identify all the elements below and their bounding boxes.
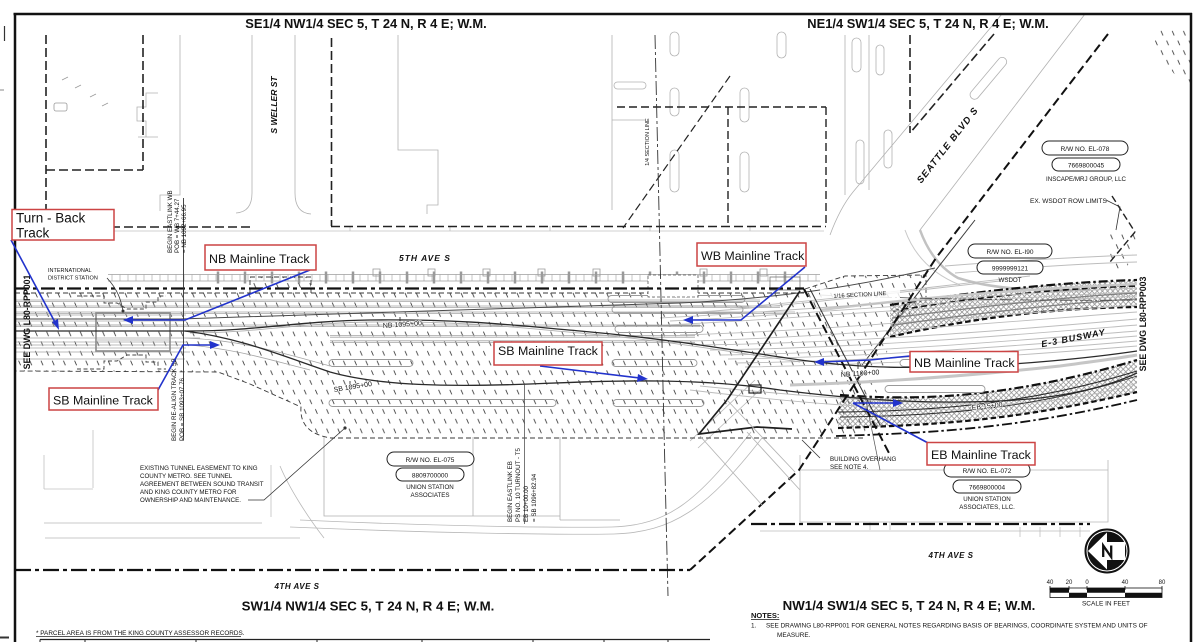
svg-text:4TH AVE S: 4TH AVE S <box>274 582 320 591</box>
svg-text:EX. WSDOT ROW LIMITS: EX. WSDOT ROW LIMITS <box>1030 198 1107 205</box>
svg-text:WB Mainline Track: WB Mainline Track <box>701 249 805 263</box>
svg-text:BEGIN EASTLINK EB: BEGIN EASTLINK EB <box>507 461 514 522</box>
svg-text:SEE DWG L80-RPP003: SEE DWG L80-RPP003 <box>1138 276 1148 371</box>
svg-text:NB Mainline Track: NB Mainline Track <box>209 252 310 266</box>
svg-text:POB = WB 7+44.27: POB = WB 7+44.27 <box>174 198 181 253</box>
svg-text:COUNTY METRO. SEE TUNNEL: COUNTY METRO. SEE TUNNEL <box>140 473 233 480</box>
svg-text:7669800045: 7669800045 <box>1068 163 1105 170</box>
svg-text:= SB 1096+82.94: = SB 1096+82.94 <box>531 473 538 522</box>
svg-text:WSDOT: WSDOT <box>998 277 1021 284</box>
svg-text:NW1/4 SW1/4 SEC 5, T 24 N, R 4: NW1/4 SW1/4 SEC 5, T 24 N, R 4 E; W.M. <box>783 598 1036 613</box>
svg-text:R/W NO. EL-078: R/W NO. EL-078 <box>1061 146 1110 153</box>
svg-text:PS NO. 10 TURNOUT - T5: PS NO. 10 TURNOUT - T5 <box>515 448 522 522</box>
svg-text:Turn - Back: Turn - Back <box>16 211 86 226</box>
svg-text:BEGIN RE-ALIGN TRACK SB: BEGIN RE-ALIGN TRACK SB <box>171 358 178 441</box>
svg-text:UNION STATION: UNION STATION <box>963 496 1011 503</box>
svg-text:SE1/4 NW1/4 SEC 5, T 24 N, R 4: SE1/4 NW1/4 SEC 5, T 24 N, R 4 E; W.M. <box>245 16 486 31</box>
svg-text:* PARCEL AREA IS FROM THE KING: * PARCEL AREA IS FROM THE KING COUNTY AS… <box>36 630 245 637</box>
svg-text:SEE DRAWING L80-RPP001 FOR GEN: SEE DRAWING L80-RPP001 FOR GENERAL NOTES… <box>766 623 1148 630</box>
svg-text:SB Mainline Track: SB Mainline Track <box>53 394 154 408</box>
svg-text:UNION STATION: UNION STATION <box>406 484 454 491</box>
svg-text:BEGIN EASTLINK WB: BEGIN EASTLINK WB <box>167 190 174 253</box>
svg-text:NE1/4 SW1/4 SEC 5, T 24 N, R 4: NE1/4 SW1/4 SEC 5, T 24 N, R 4 E; W.M. <box>807 16 1048 31</box>
svg-text:ASSOCIATES, LLC.: ASSOCIATES, LLC. <box>959 504 1015 511</box>
svg-text:AND KING COUNTY METRO FOR: AND KING COUNTY METRO FOR <box>140 489 237 496</box>
svg-text:BUILDING OVERHANG: BUILDING OVERHANG <box>830 456 897 463</box>
svg-text:MEASURE.: MEASURE. <box>777 632 811 639</box>
svg-text:DISTRICT STATION: DISTRICT STATION <box>48 276 98 282</box>
svg-text:SCALE IN FEET: SCALE IN FEET <box>1082 601 1130 608</box>
svg-text:INSCAPE/MRJ GROUP, LLC: INSCAPE/MRJ GROUP, LLC <box>1046 176 1127 183</box>
svg-text:20: 20 <box>1066 580 1073 586</box>
svg-text:4TH AVE S: 4TH AVE S <box>928 551 974 560</box>
svg-text:NOTES:: NOTES: <box>751 611 779 620</box>
svg-text:S WELLER ST: S WELLER ST <box>269 76 279 134</box>
svg-text:R/W NO. EL-072: R/W NO. EL-072 <box>963 468 1012 475</box>
svg-text:ASSOCIATES: ASSOCIATES <box>410 492 449 499</box>
svg-text:OWNERSHIP AND MAINTENANCE.: OWNERSHIP AND MAINTENANCE. <box>140 497 241 504</box>
svg-text:1/4 SECTION LINE: 1/4 SECTION LINE <box>645 118 651 166</box>
svg-text:SB Mainline Track: SB Mainline Track <box>498 344 599 358</box>
svg-text:SEE NOTE 4.: SEE NOTE 4. <box>830 464 868 471</box>
svg-text:40: 40 <box>1047 580 1054 586</box>
svg-text:8809700000: 8809700000 <box>412 473 449 480</box>
svg-text:80: 80 <box>1159 580 1166 586</box>
svg-text:SEE DWG L80-RPP001: SEE DWG L80-RPP001 <box>22 274 32 369</box>
svg-text:SW1/4 NW1/4 SEC 5, T 24 N, R 4: SW1/4 NW1/4 SEC 5, T 24 N, R 4 E; W.M. <box>242 599 495 614</box>
svg-text:= NB 1092+66.95: = NB 1092+66.95 <box>181 204 188 253</box>
svg-text:AGREEMENT BETWEEN SOUND TRANSI: AGREEMENT BETWEEN SOUND TRANSIT <box>140 481 264 488</box>
svg-text:NB Mainline Track: NB Mainline Track <box>914 356 1015 370</box>
svg-text:1.: 1. <box>751 623 757 630</box>
svg-text:40: 40 <box>1122 580 1129 586</box>
svg-text:INTERNATIONAL: INTERNATIONAL <box>48 268 92 274</box>
svg-text:EB Mainline Track: EB Mainline Track <box>931 448 1032 462</box>
svg-text:5TH AVE S: 5TH AVE S <box>399 253 451 263</box>
svg-text:R/W NO. EL-075: R/W NO. EL-075 <box>406 457 455 464</box>
svg-text:EXISTING TUNNEL EASEMENT TO KI: EXISTING TUNNEL EASEMENT TO KING <box>140 465 258 472</box>
svg-text:POB = SB 1093+07.76: POB = SB 1093+07.76 <box>179 377 186 441</box>
svg-text:R/W NO. EL-I90: R/W NO. EL-I90 <box>987 249 1034 256</box>
svg-text:Track: Track <box>16 226 49 241</box>
svg-text:9999999121: 9999999121 <box>992 266 1029 273</box>
svg-text:7669800004: 7669800004 <box>969 485 1006 492</box>
svg-text:EB 10+00.00: EB 10+00.00 <box>523 485 530 522</box>
